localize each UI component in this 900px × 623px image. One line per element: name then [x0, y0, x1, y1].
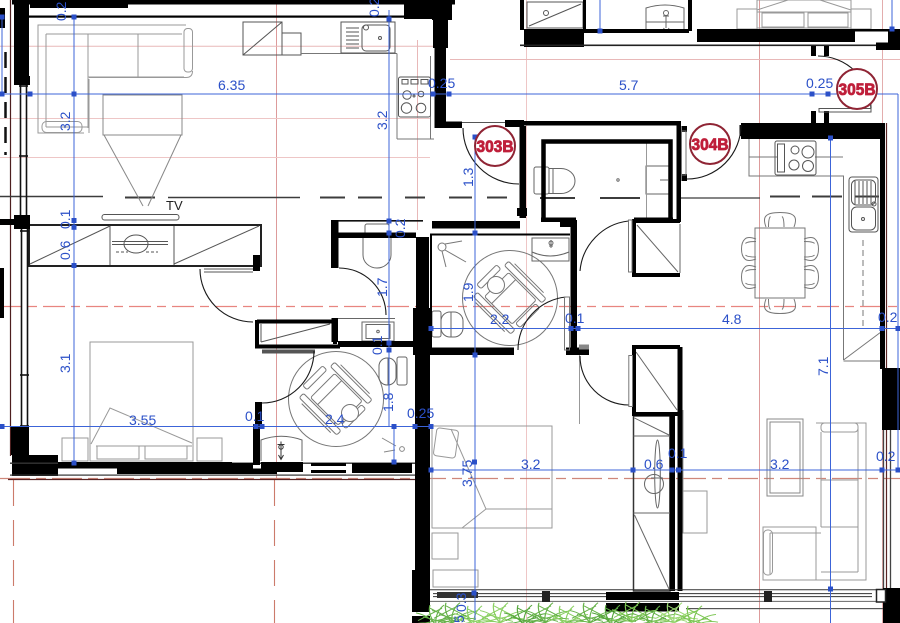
svg-text:0.2: 0.2	[392, 218, 408, 238]
svg-text:3.2: 3.2	[57, 111, 73, 131]
svg-text:2.4: 2.4	[325, 411, 345, 427]
svg-text:303B: 303B	[477, 138, 514, 156]
svg-text:3.2: 3.2	[521, 456, 541, 472]
svg-text:0.2: 0.2	[878, 309, 898, 325]
svg-text:1.7: 1.7	[374, 277, 390, 297]
svg-text:5.7: 5.7	[619, 77, 639, 93]
svg-text:0.25: 0.25	[407, 405, 434, 421]
svg-text:0.1: 0.1	[245, 408, 265, 424]
svg-text:0.2: 0.2	[53, 1, 69, 21]
svg-text:1.9: 1.9	[460, 282, 476, 302]
svg-text:0.25: 0.25	[428, 75, 455, 91]
svg-text:4.8: 4.8	[722, 311, 742, 327]
svg-text:0.6: 0.6	[644, 456, 664, 472]
svg-text:2.2: 2.2	[490, 311, 510, 327]
svg-text:3.1: 3.1	[57, 353, 73, 373]
svg-text:1.3: 1.3	[460, 167, 476, 187]
svg-text:TV: TV	[166, 198, 183, 213]
svg-text:1.8: 1.8	[380, 392, 396, 412]
svg-text:0.1: 0.1	[369, 335, 385, 355]
svg-text:0.25: 0.25	[806, 75, 833, 91]
svg-text:305B: 305B	[839, 81, 876, 99]
svg-text:3.2: 3.2	[770, 456, 790, 472]
svg-text:7.1: 7.1	[815, 356, 831, 376]
svg-text:0.6: 0.6	[57, 240, 73, 260]
svg-text:0.2: 0.2	[876, 448, 896, 464]
svg-text:0.2: 0.2	[366, 0, 382, 17]
svg-text:3.2: 3.2	[374, 110, 390, 130]
svg-text:6.35: 6.35	[218, 77, 245, 93]
svg-text:0.1: 0.1	[668, 445, 688, 461]
svg-text:304B: 304B	[692, 136, 729, 154]
svg-text:3.55: 3.55	[129, 412, 156, 428]
svg-text:5: 5	[451, 615, 467, 623]
svg-text:0.1: 0.1	[57, 209, 73, 229]
svg-text:3.75: 3.75	[459, 460, 475, 487]
svg-text:0.3: 0.3	[453, 592, 469, 612]
svg-text:0.1: 0.1	[565, 310, 585, 326]
